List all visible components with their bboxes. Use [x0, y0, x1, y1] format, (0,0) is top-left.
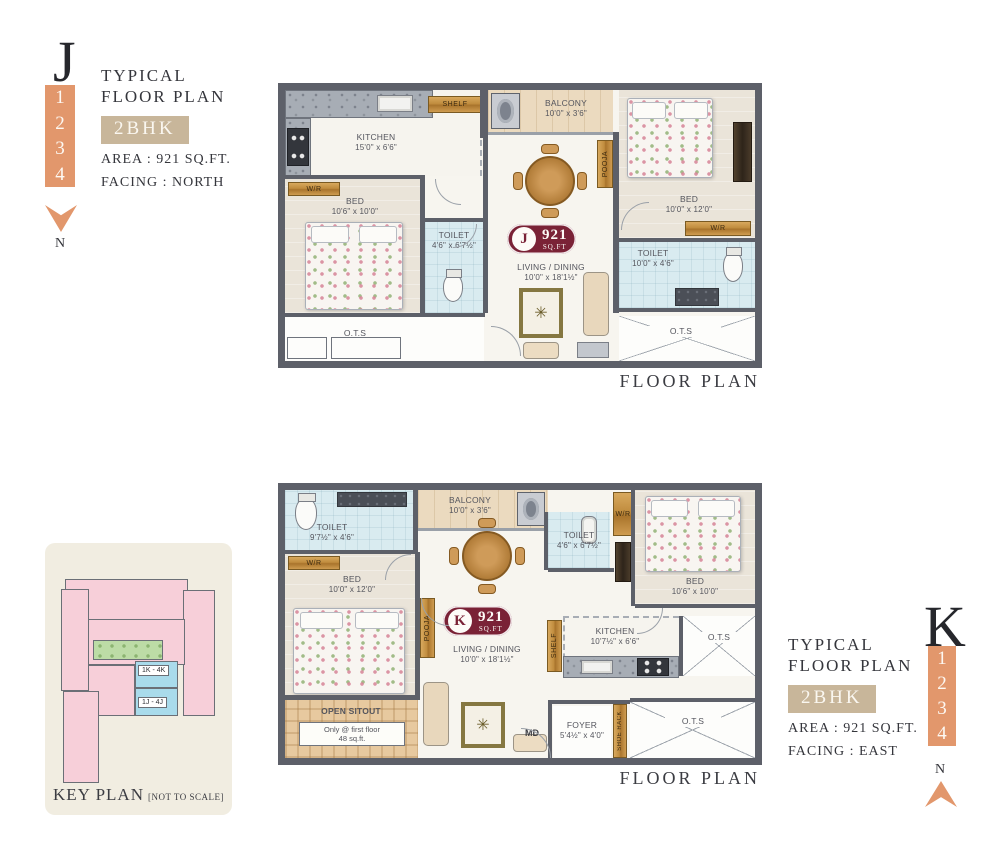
- dining-chair: [478, 584, 496, 594]
- pouf: [523, 342, 559, 359]
- unit-j-legend: J 1 2 3 4 TYPICAL FLOOR PLAN 2BHK AREA :…: [45, 33, 255, 258]
- j-balcony-label: BALCONY 10'0" x 3'6": [523, 98, 609, 119]
- dining-table: [462, 531, 512, 581]
- k-shelf: SHELF: [547, 620, 562, 672]
- dining-table: [525, 156, 575, 206]
- dining-chair: [478, 518, 496, 528]
- floor-number: 1: [937, 649, 947, 668]
- typical-title-line1: TYPICAL: [788, 634, 918, 655]
- unit-j-letter: J: [53, 33, 76, 91]
- k-open-sitout-label: OPEN SITOUT: [293, 706, 409, 717]
- dining-set: [513, 144, 587, 218]
- area-line: AREA : 921 SQ.FT.: [101, 152, 231, 168]
- kitchen-sink-icon: [377, 95, 413, 112]
- floor-number: 3: [55, 139, 65, 158]
- floor-number: 4: [937, 724, 947, 743]
- wardrobe: [615, 542, 631, 582]
- floor-number: 4: [55, 165, 65, 184]
- j-bedroom-left-label: BED 10'6" x 10'0": [295, 196, 415, 217]
- sofa: [583, 272, 609, 336]
- toilet-counter: [337, 492, 407, 507]
- toilet-counter: [675, 288, 719, 306]
- floor-number: 2: [937, 674, 947, 693]
- j-ots-right: [619, 316, 755, 361]
- bhk-badge: 2BHK: [101, 116, 189, 144]
- k-shoe-rack: SHOE RACK: [613, 704, 627, 758]
- k-wr-top: W/R: [613, 492, 633, 536]
- rug: ✳: [461, 702, 505, 748]
- floor-number: 3: [937, 699, 947, 718]
- shaft-box: [287, 337, 327, 359]
- key-plan-block: [61, 589, 89, 691]
- k-ots-top-label: O.T.S: [693, 632, 745, 643]
- key-plan-label-k: 1K - 4K: [138, 665, 169, 676]
- washing-machine-icon: [491, 93, 520, 129]
- j-wr-left: W/R: [288, 182, 340, 196]
- tv-unit: [577, 342, 609, 358]
- j-ots-right-label: O.T.S: [641, 326, 721, 337]
- k-foyer-label: FOYER 5'4½" x 4'0": [549, 720, 615, 741]
- north-label: N: [55, 236, 65, 252]
- toilet-wc-icon: [723, 252, 743, 282]
- rug-medallion-icon: ✳: [476, 715, 489, 735]
- k-balcony-label: BALCONY 10'0" x 3'6": [427, 495, 513, 516]
- j-area-badge: J 921 SQ.FT: [507, 224, 576, 254]
- bed: [293, 608, 405, 694]
- j-shelf: SHELF: [428, 96, 482, 113]
- area-line: AREA : 921 SQ.FT.: [788, 721, 918, 737]
- bed: [645, 496, 741, 572]
- floor-plan-sheet: J 1 2 3 4 TYPICAL FLOOR PLAN 2BHK AREA :…: [0, 0, 1000, 852]
- j-plan-caption: FLOOR PLAN: [560, 371, 760, 392]
- door-arc: [435, 179, 461, 205]
- k-area-badge: K 921 SQ.FT: [443, 606, 512, 636]
- key-plan-courtyard: [93, 640, 163, 660]
- bed: [627, 98, 713, 178]
- k-ots-bottom: [630, 702, 755, 758]
- dining-chair: [449, 547, 459, 565]
- key-plan-label-j: 1J - 4J: [138, 697, 167, 708]
- j-pooja: POOJA: [597, 140, 613, 188]
- key-plan-caption: KEY PLAN [NOT TO SCALE]: [45, 785, 232, 805]
- k-toilet-topleft-label: TOILET 9'7½" x 4'6": [289, 522, 375, 543]
- key-plan-block: [183, 590, 215, 716]
- dining-chair: [515, 547, 525, 565]
- door-arc: [491, 326, 521, 356]
- stove-icon: [287, 128, 309, 166]
- key-plan: 1K - 4K 1J - 4J KEY PLAN [NOT TO SCALE]: [45, 543, 232, 815]
- north-arrow-down-icon: [45, 205, 77, 232]
- dining-chair: [577, 172, 587, 190]
- unit-k-legend: K 1 2 3 4 TYPICAL FLOOR PLAN 2BHK AREA :…: [788, 598, 968, 813]
- floor-number: 1: [55, 88, 65, 107]
- shaft-box: [331, 337, 401, 359]
- k-bedroom-right-label: BED 10'6" x 10'0": [637, 576, 753, 597]
- k-wr-left: W/R: [288, 556, 340, 570]
- stove-icon: [637, 658, 669, 676]
- j-toilet-right-label: TOILET 10'0" x 4'6": [621, 248, 685, 269]
- k-ots-top: [683, 616, 755, 676]
- unit-j-floor-stack: 1 2 3 4: [45, 85, 75, 187]
- rug: ✳: [519, 288, 563, 338]
- key-plan-block: [63, 691, 99, 783]
- facing-line: FACING : NORTH: [101, 175, 231, 191]
- floor-plan-k: TOILET 9'7½" x 4'6" W/R BED 10'0" x 12'0…: [278, 483, 762, 765]
- rug-medallion-icon: ✳: [534, 303, 547, 323]
- j-wr-right: W/R: [685, 221, 751, 236]
- balcony-rail: [488, 132, 613, 135]
- bhk-badge: 2BHK: [788, 685, 876, 713]
- typical-title-line1: TYPICAL: [101, 65, 231, 86]
- dining-chair: [541, 208, 559, 218]
- k-ots-bottom-label: O.T.S: [665, 716, 721, 727]
- bed: [305, 222, 403, 310]
- toilet-wc-icon: [443, 274, 463, 302]
- kitchen-sink-icon: [581, 660, 613, 674]
- facing-line: FACING : EAST: [788, 744, 918, 760]
- wardrobe: [733, 122, 752, 182]
- k-toilet-top-label: TOILET 4'6" x 6'7½": [546, 530, 612, 551]
- typical-title-line2: FLOOR PLAN: [101, 86, 231, 107]
- k-sitout-note: Only @ first floor 48 sq.ft.: [299, 722, 405, 746]
- j-kitchen-label: KITCHEN 15'0" x 6'6": [321, 132, 431, 153]
- north-label: N: [935, 762, 945, 778]
- door-arc: [521, 728, 551, 758]
- dining-chair: [513, 172, 523, 190]
- dining-chair: [541, 144, 559, 154]
- sofa: [423, 682, 449, 746]
- dining-set: [449, 518, 525, 594]
- k-plan-caption: FLOOR PLAN: [560, 768, 760, 789]
- floor-plan-j: KITCHEN 15'0" x 6'6" SHELF BALCONY 10'0"…: [278, 83, 762, 368]
- floor-number: 2: [55, 114, 65, 133]
- unit-k-floor-stack: 1 2 3 4: [928, 646, 956, 746]
- north-arrow-up-icon: [925, 781, 957, 807]
- k-living-label: LIVING / DINING 10'0" x 18'1½": [425, 644, 549, 665]
- typical-title-line2: FLOOR PLAN: [788, 655, 918, 676]
